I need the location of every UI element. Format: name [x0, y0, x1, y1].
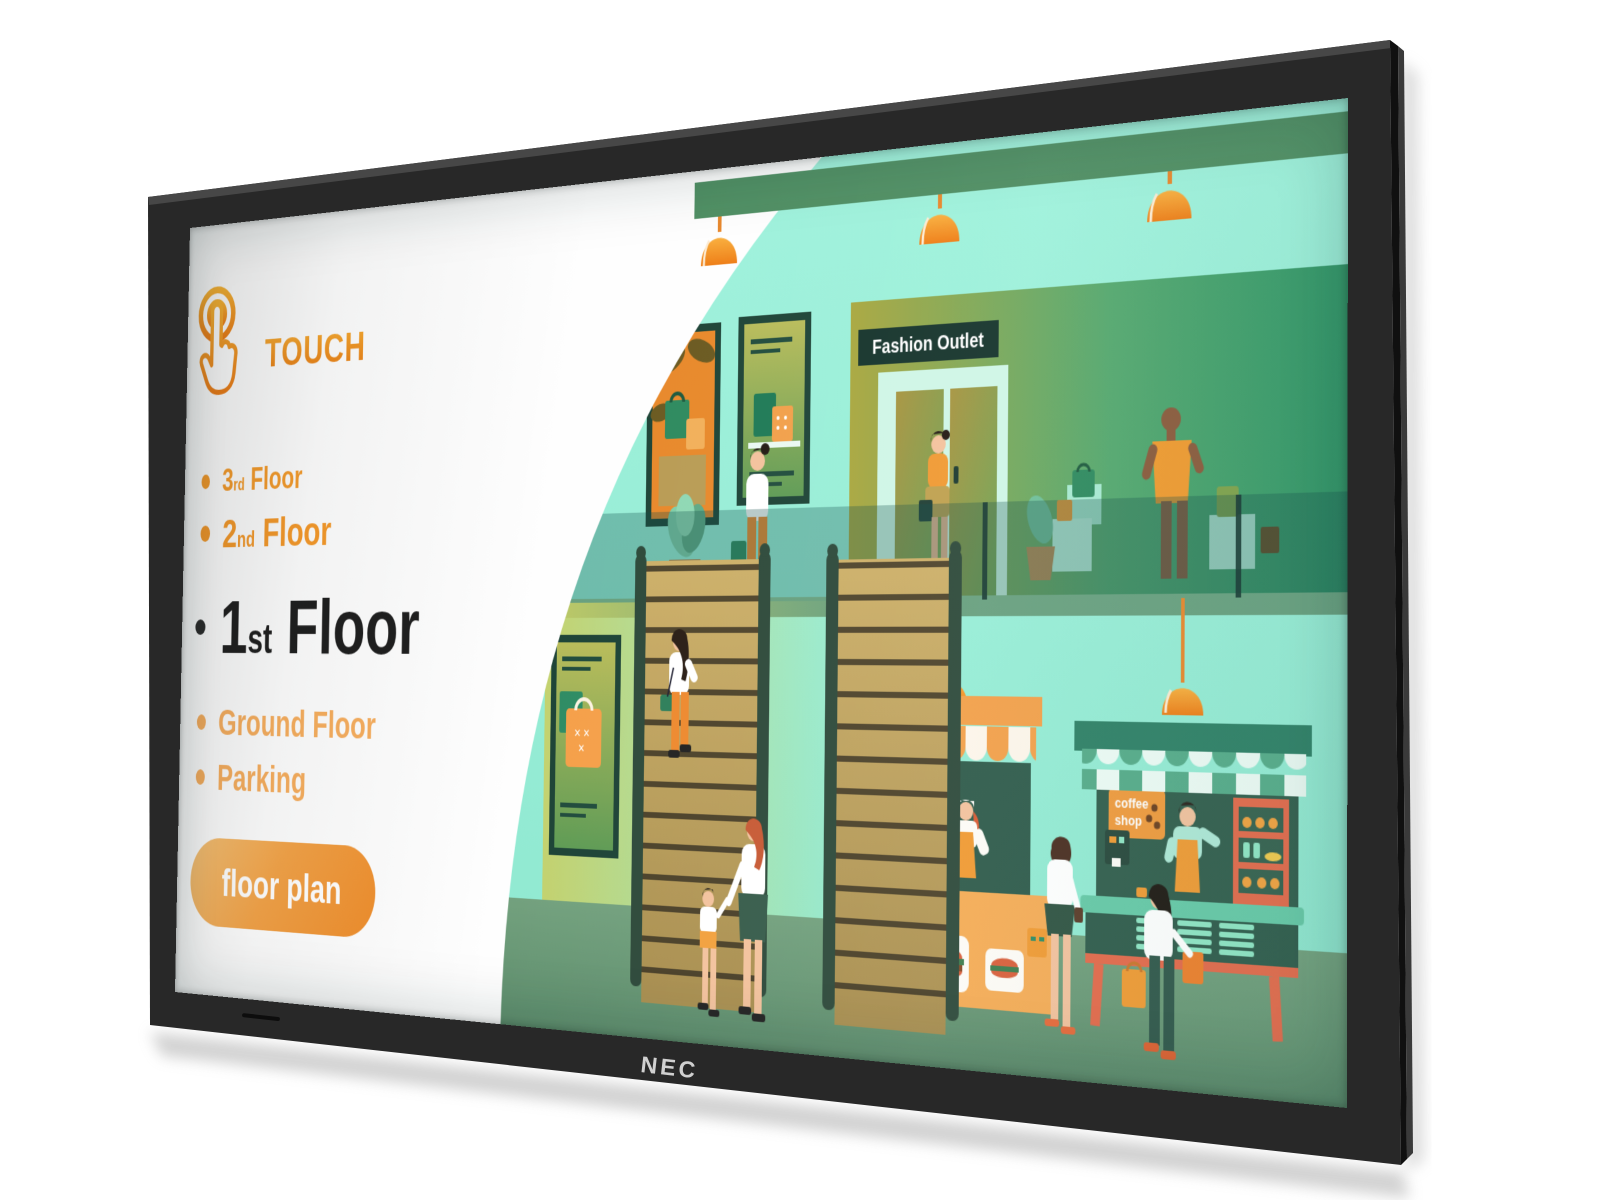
wall-poster-bags: [737, 312, 812, 506]
floor-plan-button-label: floor plan: [221, 860, 342, 914]
touch-label: TOUCH: [264, 321, 366, 377]
floor-item-ground-floor[interactable]: Ground Floor: [197, 701, 377, 747]
floor-item-parking[interactable]: Parking: [195, 756, 306, 802]
svg-text:✕: ✕: [578, 741, 585, 755]
touch-gesture-icon: [192, 278, 249, 400]
product-photo-canvas: { "device": { "brand": "NEC" }, "screen"…: [0, 0, 1600, 1200]
bullet-icon: [200, 526, 210, 542]
bullet-icon: [197, 714, 206, 730]
floor-item-3rd-floor[interactable]: 3rdFloor: [201, 459, 303, 499]
coffee-sign-line2: shop: [1115, 812, 1143, 829]
escalator-right: [822, 541, 962, 1036]
floor-item-2nd-floor[interactable]: 2ndFloor: [200, 506, 332, 557]
touch-header: TOUCH: [192, 278, 249, 400]
bullet-icon: [201, 474, 210, 489]
railing-post: [1236, 495, 1242, 598]
railing-post: [982, 502, 988, 599]
floor-item-1st-floor-selected[interactable]: 1stFloor: [195, 581, 421, 673]
svg-text:✕ ✕: ✕ ✕: [574, 726, 590, 740]
bullet-icon: [195, 619, 205, 634]
coffee-shelf: [1233, 798, 1289, 914]
bullet-icon: [196, 769, 205, 785]
floor-plan-button[interactable]: floor plan: [190, 837, 376, 939]
coffee-awning: [1074, 721, 1312, 797]
coffee-sign-line1: coffee: [1115, 795, 1149, 812]
floor-selection-menu: TOUCH 3rdFloor 2ndFloor 1stFloor Ground …: [175, 184, 579, 1030]
touch-screen: Fashion Outlet: [175, 98, 1348, 1108]
